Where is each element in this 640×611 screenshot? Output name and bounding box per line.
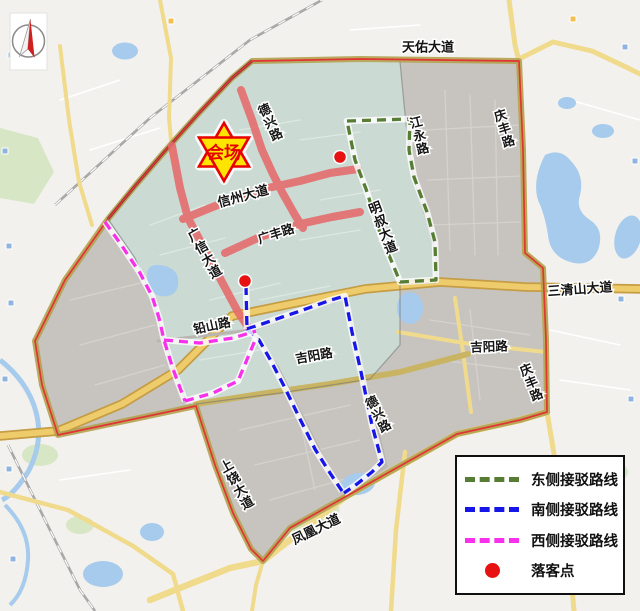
- east-route-dash-icon: [465, 477, 519, 482]
- legend-item-west-route: 西侧接驳路线: [465, 530, 615, 551]
- legend-item-east-route: 东侧接驳路线: [465, 469, 615, 490]
- road-label-jiyang-road-east: 吉阳路: [470, 338, 509, 354]
- legend-item-drop-point: 落客点: [465, 560, 615, 581]
- venue-label: 会场: [207, 143, 241, 163]
- legend-item-label: 东侧接驳路线: [531, 469, 618, 490]
- south-route-dash-icon: [465, 507, 519, 512]
- map-screenshot: 会场 天佑大道 庆丰路 江永路 德兴路 信州大道 明叔大道 广信大道 广丰路 三…: [0, 0, 640, 611]
- legend-item-south-route: 南侧接驳路线: [465, 499, 615, 520]
- drop-point-dot-icon: [465, 563, 519, 578]
- legend-box: 东侧接驳路线 南侧接驳路线 西侧接驳路线 落客点: [455, 455, 625, 595]
- road-label-tianyou-avenue: 天佑大道: [402, 40, 454, 55]
- legend-item-label: 落客点: [531, 560, 575, 581]
- drop-point-marker: [334, 151, 347, 164]
- north-compass-icon: [10, 13, 47, 70]
- legend-item-label: 西侧接驳路线: [531, 530, 618, 551]
- drop-point-marker: [239, 275, 252, 288]
- west-route-dash-icon: [465, 538, 519, 543]
- legend-item-label: 南侧接驳路线: [531, 499, 618, 520]
